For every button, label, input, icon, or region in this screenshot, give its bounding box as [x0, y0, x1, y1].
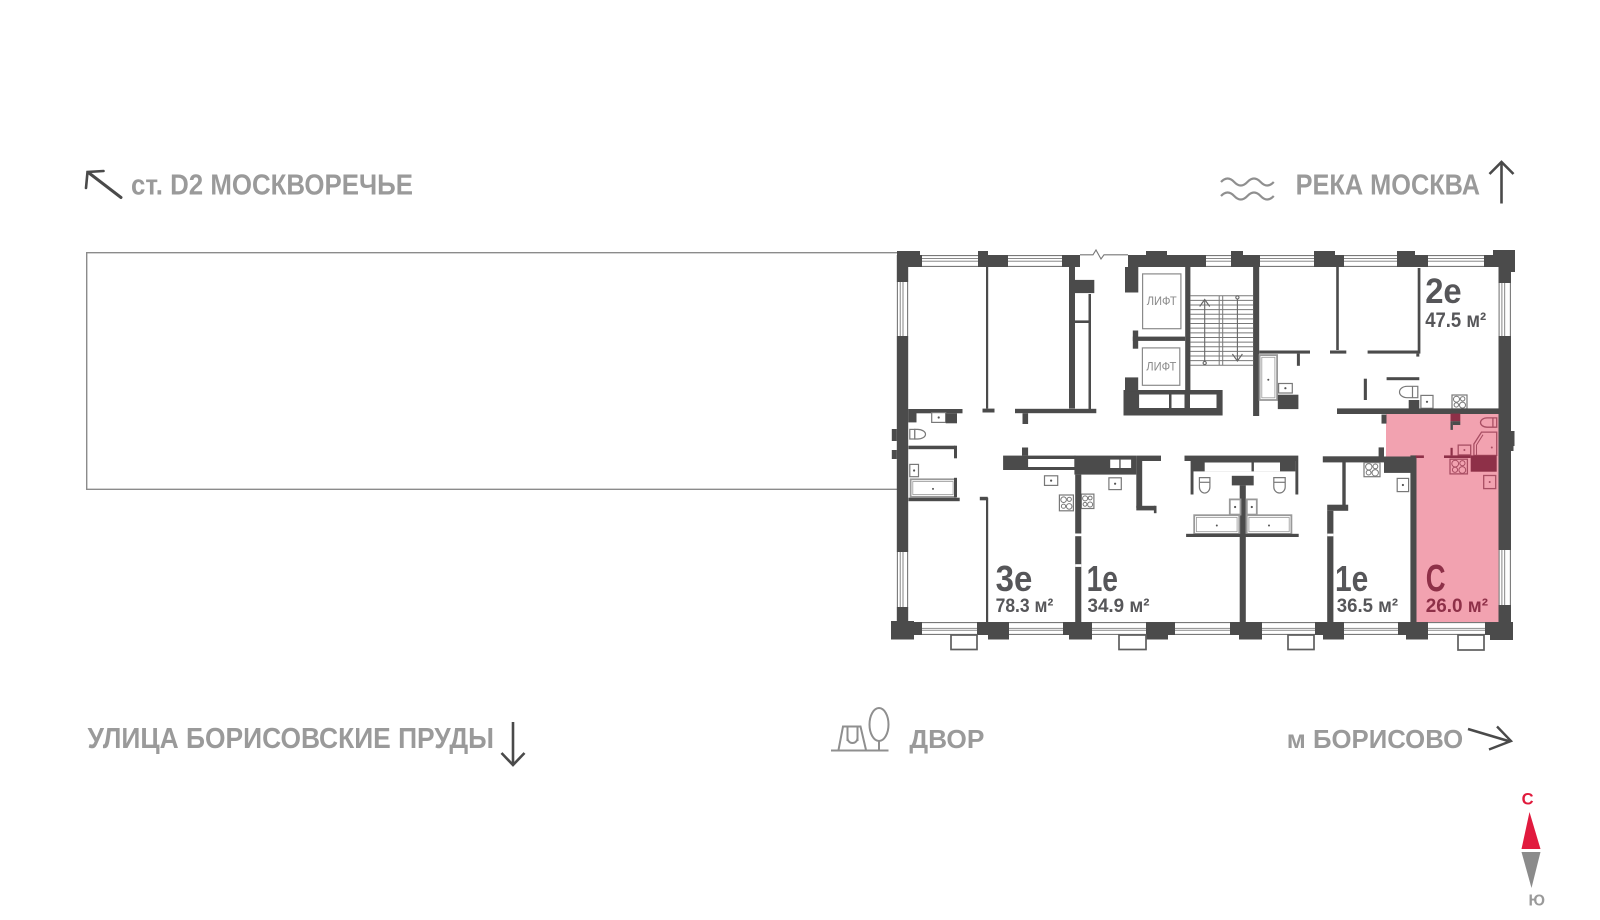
svg-text:1е: 1е	[1335, 558, 1368, 599]
svg-text:34.9 м²: 34.9 м²	[1088, 596, 1150, 617]
svg-text:3е: 3е	[996, 558, 1033, 599]
svg-text:ДВОР: ДВОР	[909, 724, 984, 754]
svg-text:36.5 м²: 36.5 м²	[1337, 596, 1398, 617]
svg-text:47.5 м²: 47.5 м²	[1425, 309, 1486, 332]
svg-text:78.3 м²: 78.3 м²	[996, 596, 1054, 617]
svg-text:Ю: Ю	[1529, 893, 1546, 910]
svg-text:С: С	[1522, 791, 1534, 809]
svg-text:С: С	[1426, 558, 1446, 600]
svg-text:2е: 2е	[1425, 272, 1462, 311]
svg-text:РЕКА МОСКВА: РЕКА МОСКВА	[1296, 170, 1480, 202]
svg-text:26.0 м²: 26.0 м²	[1426, 596, 1488, 617]
svg-text:УЛИЦА БОРИСОВСКИЕ ПРУДЫ: УЛИЦА БОРИСОВСКИЕ ПРУДЫ	[88, 723, 495, 755]
svg-text:ЛИФТ: ЛИФТ	[1147, 294, 1178, 308]
svg-text:м БОРИСОВО: м БОРИСОВО	[1287, 724, 1463, 754]
svg-text:1е: 1е	[1087, 558, 1118, 599]
svg-text:ст. D2 МОСКВОРЕЧЬЕ: ст. D2 МОСКВОРЕЧЬЕ	[131, 170, 413, 202]
svg-text:ЛИФТ: ЛИФТ	[1146, 360, 1177, 374]
